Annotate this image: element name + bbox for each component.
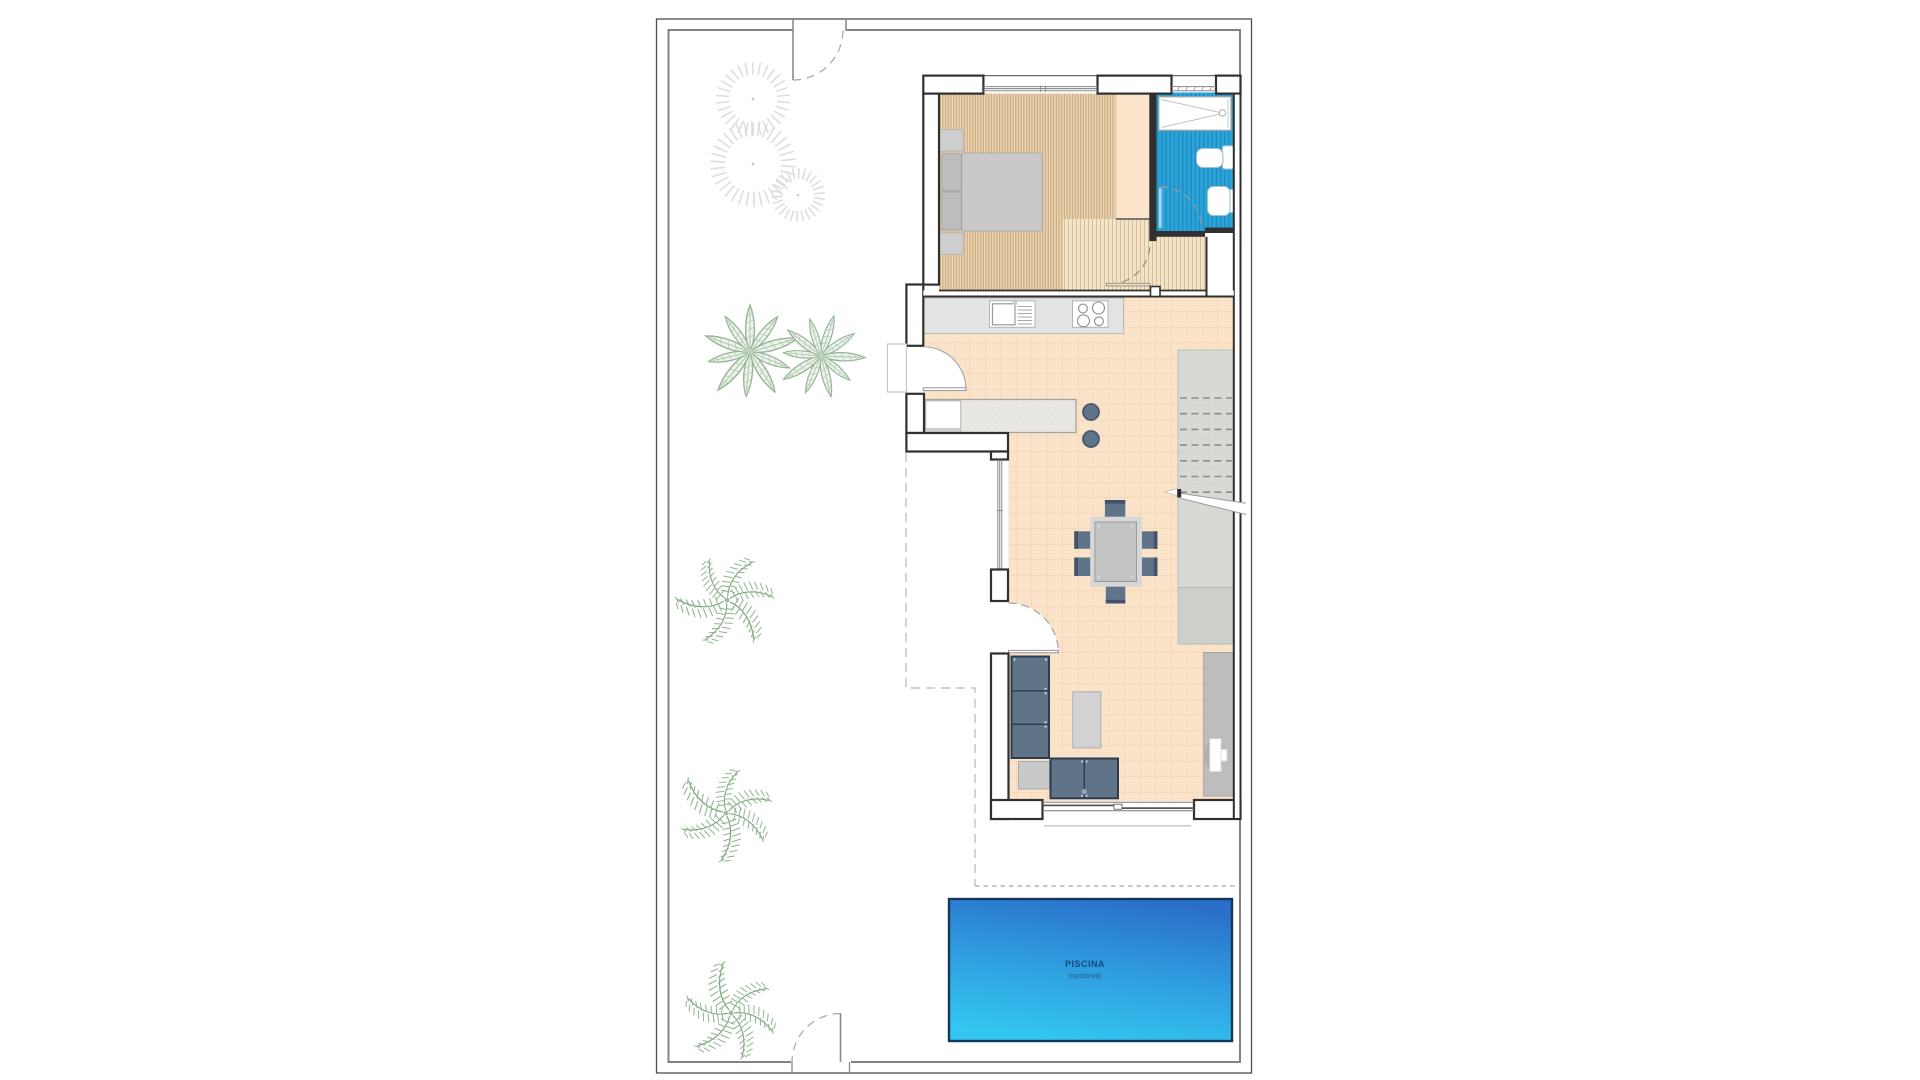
svg-text:PISCINA: PISCINA: [1065, 959, 1105, 969]
svg-text:(opcional): (opcional): [1069, 971, 1102, 980]
